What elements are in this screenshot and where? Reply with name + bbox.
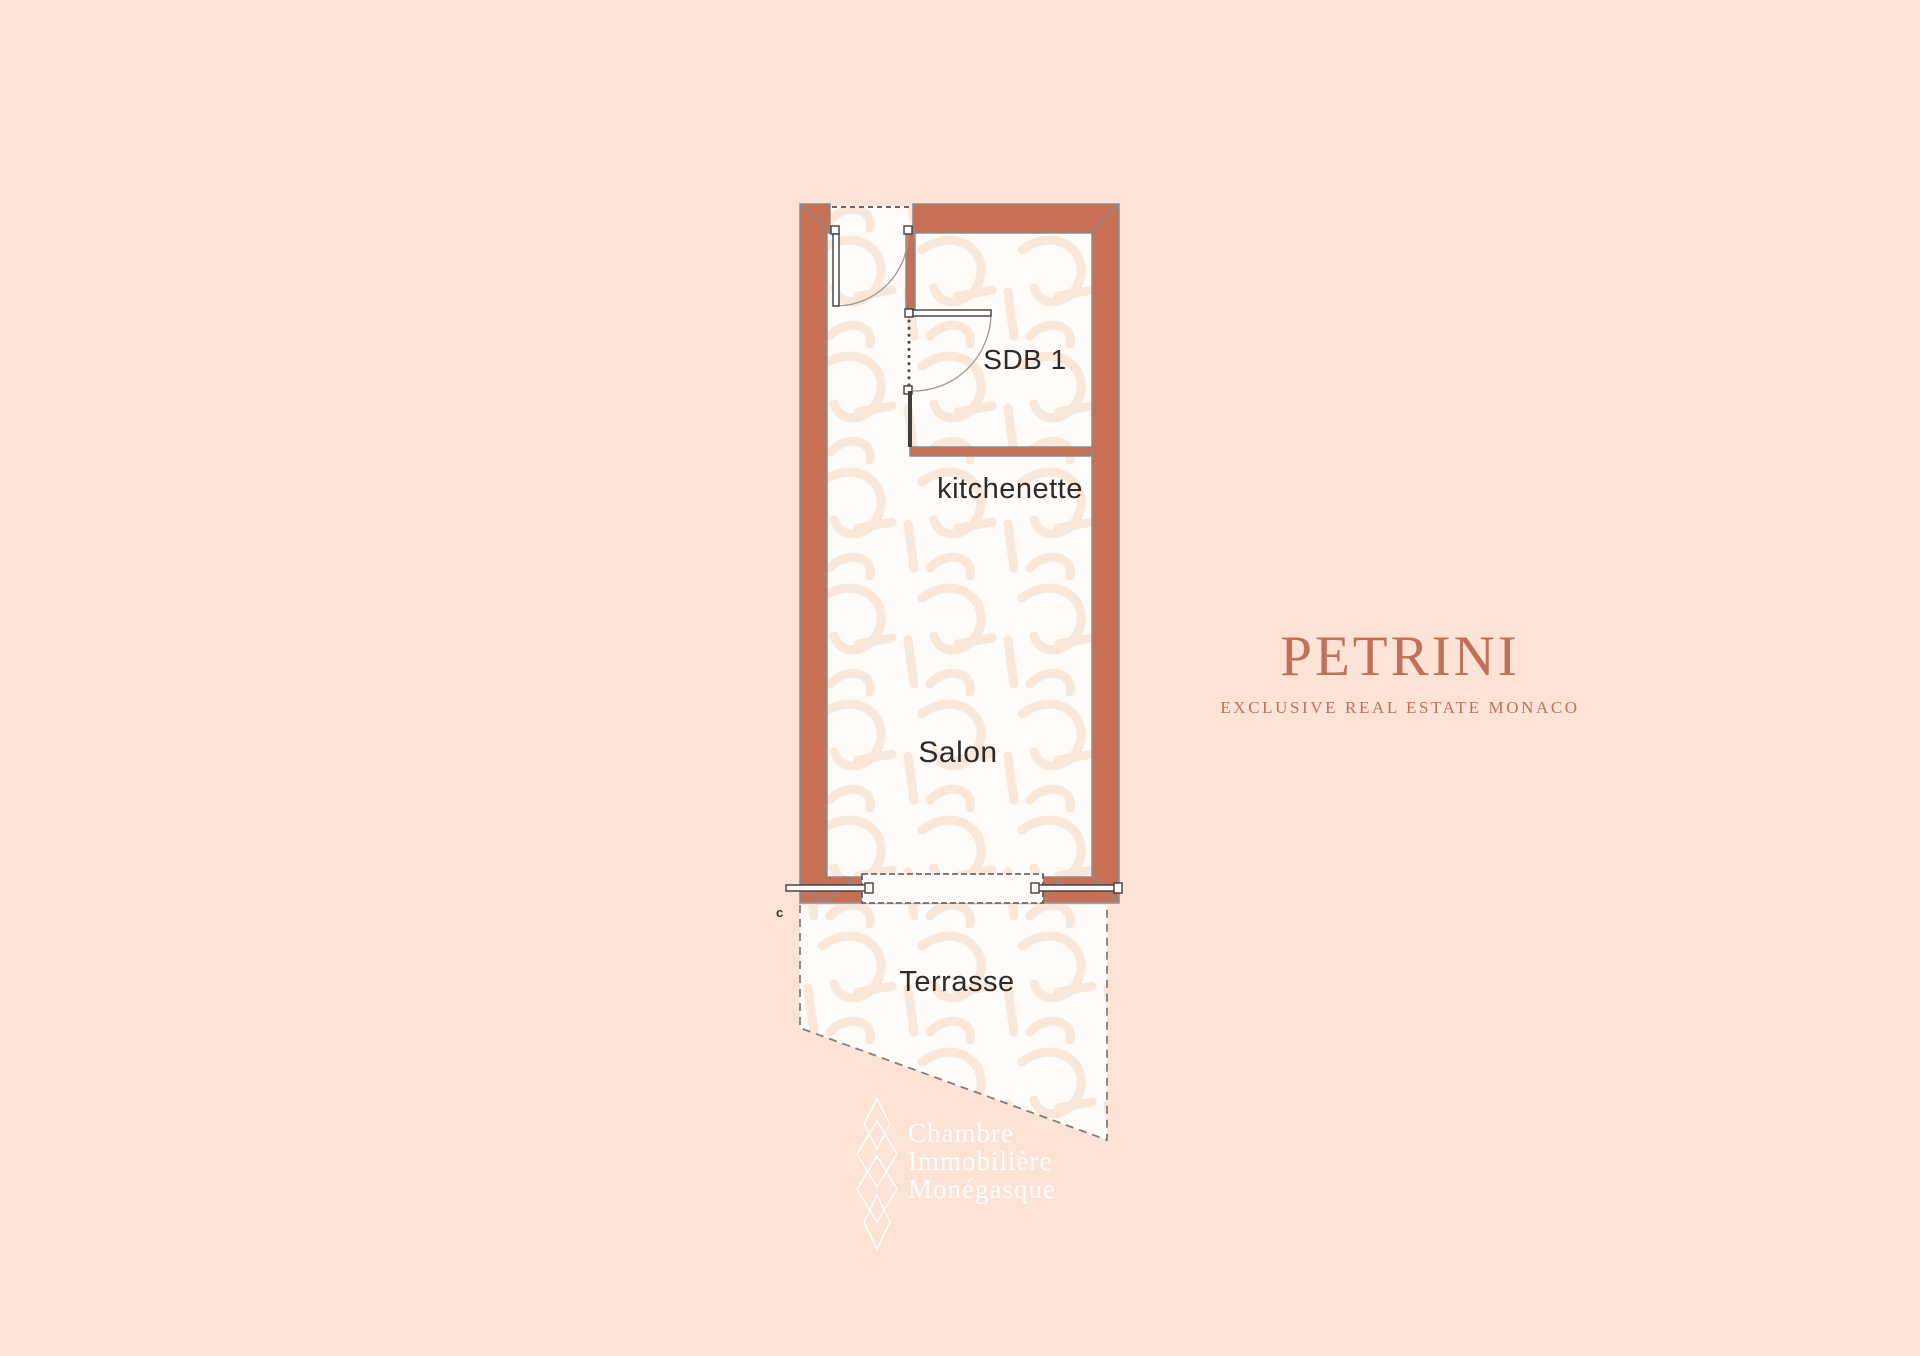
floorplan-diagram	[770, 195, 1140, 1155]
cim-diamond-logo-icon	[853, 1096, 901, 1252]
brand-tagline: EXCLUSIVE REAL ESTATE MONACO	[1180, 698, 1620, 718]
brand-name: PETRINI	[1180, 628, 1620, 685]
watermark-line: Monégasque	[908, 1175, 1056, 1203]
room-label-salon: Salon	[893, 736, 1023, 770]
watermark-line: Immobilière	[908, 1147, 1056, 1175]
watermark-line: Chambre	[908, 1119, 1056, 1147]
watermark-text: Chambre Immobilière Monégasque	[908, 1119, 1056, 1203]
sliding-window	[862, 874, 1043, 903]
room-label-kitchenette: kitchenette	[915, 473, 1105, 506]
terrace-area	[800, 905, 1107, 1140]
corner-mark: c	[776, 905, 783, 920]
sdb1-bottom-wall	[910, 447, 1092, 456]
room-label-sdb1: SDB 1	[960, 344, 1090, 376]
brand-block: PETRINI EXCLUSIVE REAL ESTATE MONACO	[1180, 628, 1620, 718]
page-background: SDB 1 kitchenette Salon Terrasse c PETRI…	[0, 0, 1920, 1356]
room-label-terrasse: Terrasse	[887, 966, 1027, 999]
